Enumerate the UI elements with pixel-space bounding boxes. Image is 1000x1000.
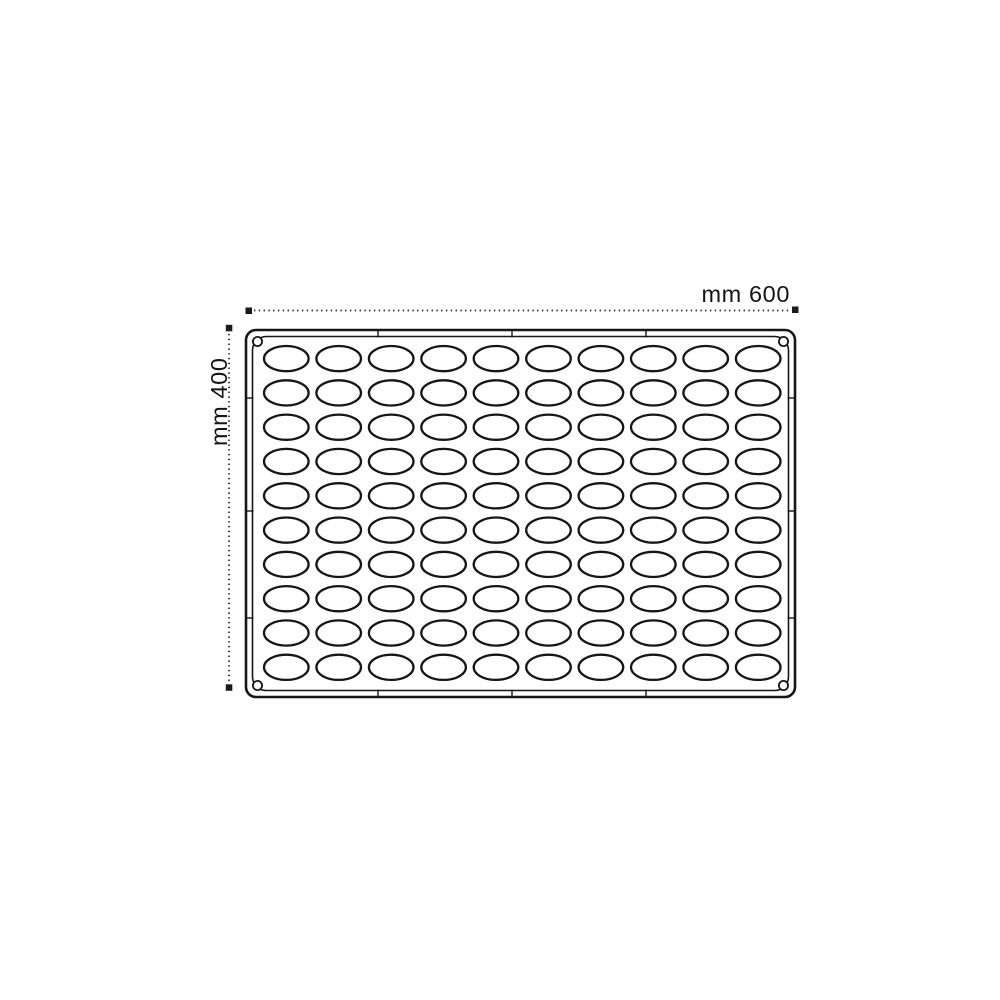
corner-hole-bottom-left-icon [253,681,262,690]
corner-hole-top-left-icon [253,337,262,346]
tray-outer-border [246,330,795,697]
width-dimension-end-marker [792,307,799,314]
mold-tray [246,330,795,697]
width-dimension-start-marker [246,308,253,315]
width-dimension-label: mm 600 [702,281,791,307]
drawing-canvas: mm 600 mm 400 [0,0,1000,1000]
corner-hole-top-right-icon [779,337,788,346]
mold-technical-drawing: mm 600 mm 400 [0,0,1000,1000]
horizontal-dimension: mm 600 [246,281,799,314]
vertical-dimension: mm 400 [206,325,232,691]
height-dimension-start-marker [226,325,233,332]
corner-hole-bottom-right-icon [779,681,788,690]
height-dimension-end-marker [226,684,233,691]
